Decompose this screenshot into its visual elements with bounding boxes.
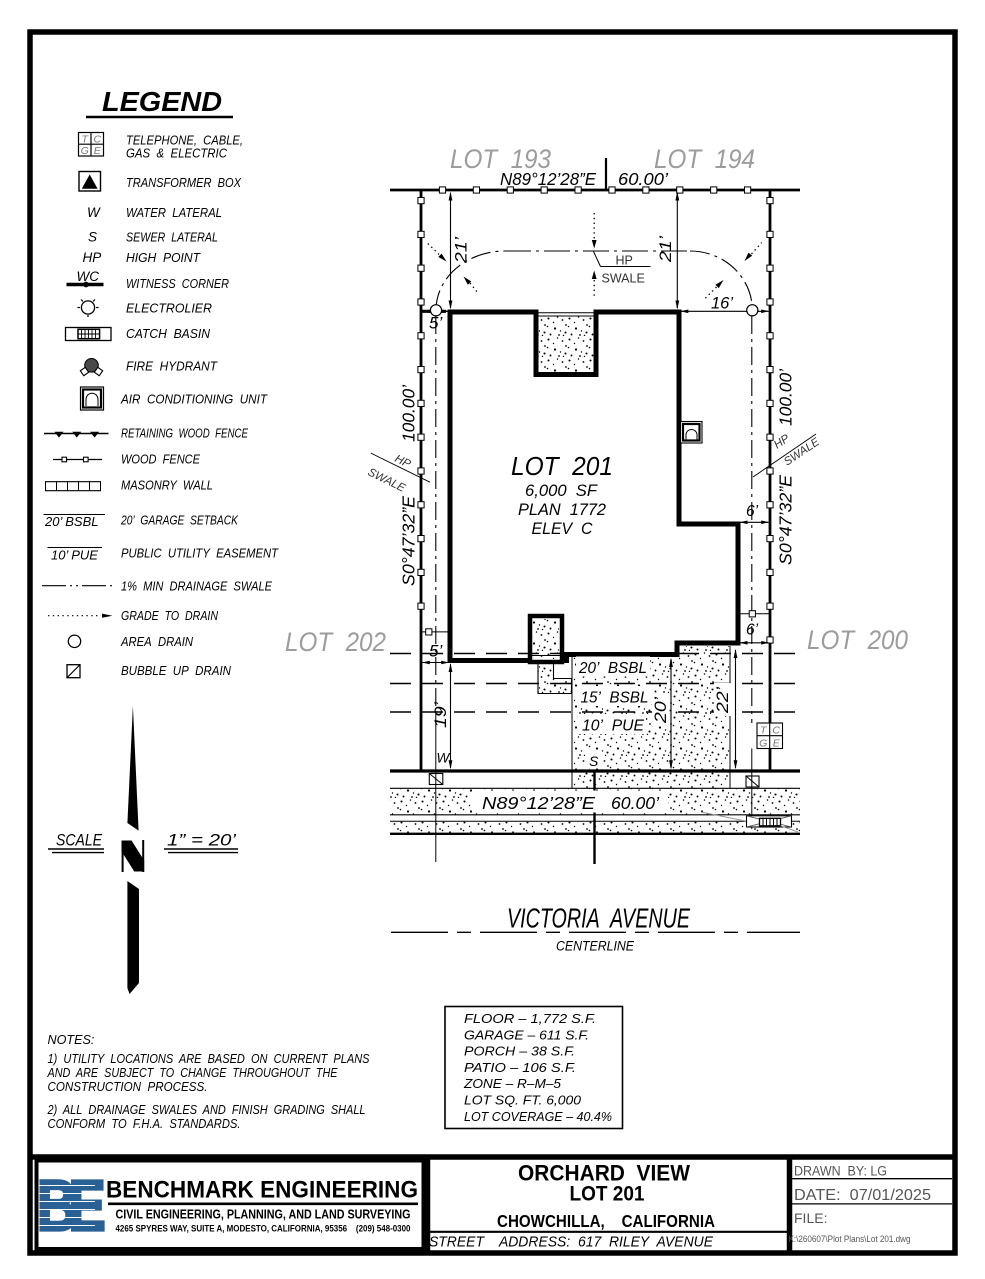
svg-text:2) ALL DRAINAGE SWALES AND: 2) ALL DRAINAGE SWALES AND FINISH GRADIN… bbox=[47, 1103, 366, 1117]
svg-text:S0°47’32”E: S0°47’32”E bbox=[776, 475, 796, 565]
svg-text:SEWER LATERAL: SEWER LATERAL bbox=[126, 230, 218, 245]
svg-text:22’: 22’ bbox=[713, 687, 732, 714]
svg-text:5’: 5’ bbox=[429, 642, 442, 661]
svg-text:21’: 21’ bbox=[656, 236, 675, 263]
svg-text:16’: 16’ bbox=[711, 295, 733, 313]
svg-text:1% MIN DRAINAGE SWALE: 1% MIN DRAINAGE SWALE bbox=[121, 579, 272, 594]
svg-text:CHOWCHILLA, CALIFORNIA: CHOWCHILLA, CALIFORNIA bbox=[497, 1211, 715, 1231]
svg-text:LOT 200: LOT 200 bbox=[807, 625, 908, 655]
svg-text:100.00’: 100.00’ bbox=[776, 368, 796, 426]
svg-text:LOT SQ. FT. 6,000: LOT SQ. FT. 6,000 bbox=[464, 1093, 582, 1108]
svg-text:FILE:: FILE: bbox=[794, 1210, 827, 1226]
svg-text:VICTORIA AVENUE: VICTORIA AVENUE bbox=[507, 903, 690, 934]
svg-text:100.00’: 100.00’ bbox=[399, 384, 419, 442]
svg-text:WATER LATERAL: WATER LATERAL bbox=[126, 205, 222, 220]
svg-text:AIR CONDITIONING UNIT: AIR CONDITIONING UNIT bbox=[120, 392, 268, 407]
svg-text:LOT 201: LOT 201 bbox=[511, 451, 613, 481]
svg-text:CONSTRUCTION PROCESS.: CONSTRUCTION PROCESS. bbox=[48, 1080, 208, 1094]
svg-text:DRAWN BY: LG: DRAWN BY: LG bbox=[794, 1164, 887, 1179]
svg-text:CONFORM TO F.H.A. STANDARDS: CONFORM TO F.H.A. STANDARDS. bbox=[48, 1117, 241, 1131]
svg-text:CATCH BASIN: CATCH BASIN bbox=[126, 326, 211, 341]
svg-text:BUBBLE UP DRAIN: BUBBLE UP DRAIN bbox=[121, 663, 232, 678]
svg-text:60.00’: 60.00’ bbox=[611, 793, 660, 813]
svg-text:S: S bbox=[88, 230, 97, 245]
svg-text:GARAGE – 611 S.F.: GARAGE – 611 S.F. bbox=[464, 1027, 589, 1042]
svg-text:CIVIL ENGINEERING, PLANNING, A: CIVIL ENGINEERING, PLANNING, AND LAND SU… bbox=[116, 1208, 411, 1222]
svg-text:21’: 21’ bbox=[452, 237, 471, 264]
svg-text:LEGEND: LEGEND bbox=[102, 86, 222, 117]
svg-text:1” = 20’: 1” = 20’ bbox=[167, 832, 236, 850]
svg-text:HP: HP bbox=[616, 254, 633, 268]
svg-text:ELEV C: ELEV C bbox=[532, 519, 594, 538]
svg-text:10’ PUE: 10’ PUE bbox=[582, 718, 645, 735]
svg-text:GRADE TO DRAIN: GRADE TO DRAIN bbox=[121, 608, 219, 623]
svg-text:LOT 194: LOT 194 bbox=[654, 144, 755, 174]
svg-text:K:\260607\Plot Plans\Lot 201.d: K:\260607\Plot Plans\Lot 201.dwg bbox=[789, 1234, 911, 1244]
svg-text:20’ BSBL: 20’ BSBL bbox=[578, 660, 647, 677]
svg-text:C: C bbox=[94, 133, 102, 145]
svg-text:WOOD FENCE: WOOD FENCE bbox=[121, 452, 200, 467]
svg-text:C: C bbox=[772, 725, 780, 737]
svg-text:PLAN 1772: PLAN 1772 bbox=[518, 500, 607, 519]
svg-text:BENCHMARK ENGINEERING: BENCHMARK ENGINEERING bbox=[106, 1177, 418, 1204]
svg-text:CENTERLINE: CENTERLINE bbox=[556, 939, 635, 954]
svg-text:FIRE HYDRANT: FIRE HYDRANT bbox=[126, 359, 218, 374]
svg-text:RETAINING WOOD FENCE: RETAINING WOOD FENCE bbox=[121, 426, 248, 441]
svg-text:AREA DRAIN: AREA DRAIN bbox=[120, 634, 194, 649]
svg-text:E: E bbox=[773, 737, 781, 749]
svg-text:SWALE: SWALE bbox=[602, 272, 645, 286]
svg-text:LOT 201: LOT 201 bbox=[570, 1183, 645, 1206]
svg-text:10’ PUE: 10’ PUE bbox=[51, 548, 98, 563]
svg-text:20’ GARAGE SETBACK: 20’ GARAGE SETBACK bbox=[120, 513, 238, 528]
svg-text:S0°47’32”E: S0°47’32”E bbox=[399, 496, 419, 586]
svg-text:BE: BE bbox=[37, 1167, 104, 1246]
svg-text:G: G bbox=[759, 737, 767, 749]
svg-text:SCALE: SCALE bbox=[56, 832, 103, 850]
svg-text:20’: 20’ bbox=[651, 697, 670, 724]
svg-text:STREET ADDRESS: 617 RILEY: STREET ADDRESS: 617 RILEY AVENUE bbox=[429, 1235, 713, 1251]
svg-text:ELECTROLIER: ELECTROLIER bbox=[126, 301, 212, 316]
svg-text:1) UTILITY LOCATIONS ARE B: 1) UTILITY LOCATIONS ARE BASED ON CURREN… bbox=[48, 1052, 371, 1066]
svg-text:PORCH – 38 S.F.: PORCH – 38 S.F. bbox=[464, 1044, 575, 1059]
svg-text:DATE: 07/01/2025: DATE: 07/01/2025 bbox=[794, 1187, 931, 1204]
svg-text:TRANSFORMER BOX: TRANSFORMER BOX bbox=[126, 175, 241, 190]
svg-text:NOTES:: NOTES: bbox=[48, 1033, 95, 1047]
svg-text:WC: WC bbox=[77, 269, 100, 284]
svg-text:19’: 19’ bbox=[431, 702, 450, 728]
svg-text:ZONE – R–M–5: ZONE – R–M–5 bbox=[463, 1076, 562, 1091]
svg-text:S: S bbox=[589, 753, 599, 769]
svg-text:60.00’: 60.00’ bbox=[618, 169, 669, 189]
svg-text:HIGH POINT: HIGH POINT bbox=[126, 250, 201, 265]
svg-text:FLOOR – 1,772 S.F.: FLOOR – 1,772 S.F. bbox=[464, 1011, 596, 1026]
svg-text:N89°12’28”E: N89°12’28”E bbox=[500, 169, 596, 189]
svg-text:MASONRY WALL: MASONRY WALL bbox=[121, 478, 213, 493]
svg-text:LOT COVERAGE – 40.4%: LOT COVERAGE – 40.4% bbox=[464, 1109, 612, 1124]
svg-text:HP: HP bbox=[83, 250, 102, 265]
svg-text:15’ BSBL: 15’ BSBL bbox=[581, 690, 649, 707]
svg-text:6,000 SF: 6,000 SF bbox=[525, 481, 599, 500]
svg-text:6’: 6’ bbox=[746, 503, 759, 520]
svg-text:LOT 202: LOT 202 bbox=[285, 627, 386, 657]
svg-text:20’ BSBL: 20’ BSBL bbox=[44, 514, 99, 529]
svg-text:AND ARE SUBJECT TO CHANGE: AND ARE SUBJECT TO CHANGE THROUGHOUT THE bbox=[47, 1066, 338, 1080]
svg-text:PUBLIC UTILITY EASEMENT: PUBLIC UTILITY EASEMENT bbox=[121, 546, 279, 561]
svg-text:G: G bbox=[81, 145, 89, 157]
svg-text:GAS & ELECTRIC: GAS & ELECTRIC bbox=[126, 146, 228, 161]
svg-text:E: E bbox=[94, 145, 102, 157]
svg-text:PATIO – 106 S.F.: PATIO – 106 S.F. bbox=[464, 1060, 576, 1075]
svg-text:WITNESS CORNER: WITNESS CORNER bbox=[126, 276, 229, 291]
svg-text:4265 SPYRES WAY, SUITE A, MODE: 4265 SPYRES WAY, SUITE A, MODESTO, CALIF… bbox=[116, 1224, 411, 1235]
svg-text:W: W bbox=[437, 751, 451, 766]
svg-text:W: W bbox=[87, 205, 101, 220]
svg-text:6’: 6’ bbox=[746, 622, 759, 639]
svg-text:N89°12’28”E: N89°12’28”E bbox=[482, 793, 595, 813]
